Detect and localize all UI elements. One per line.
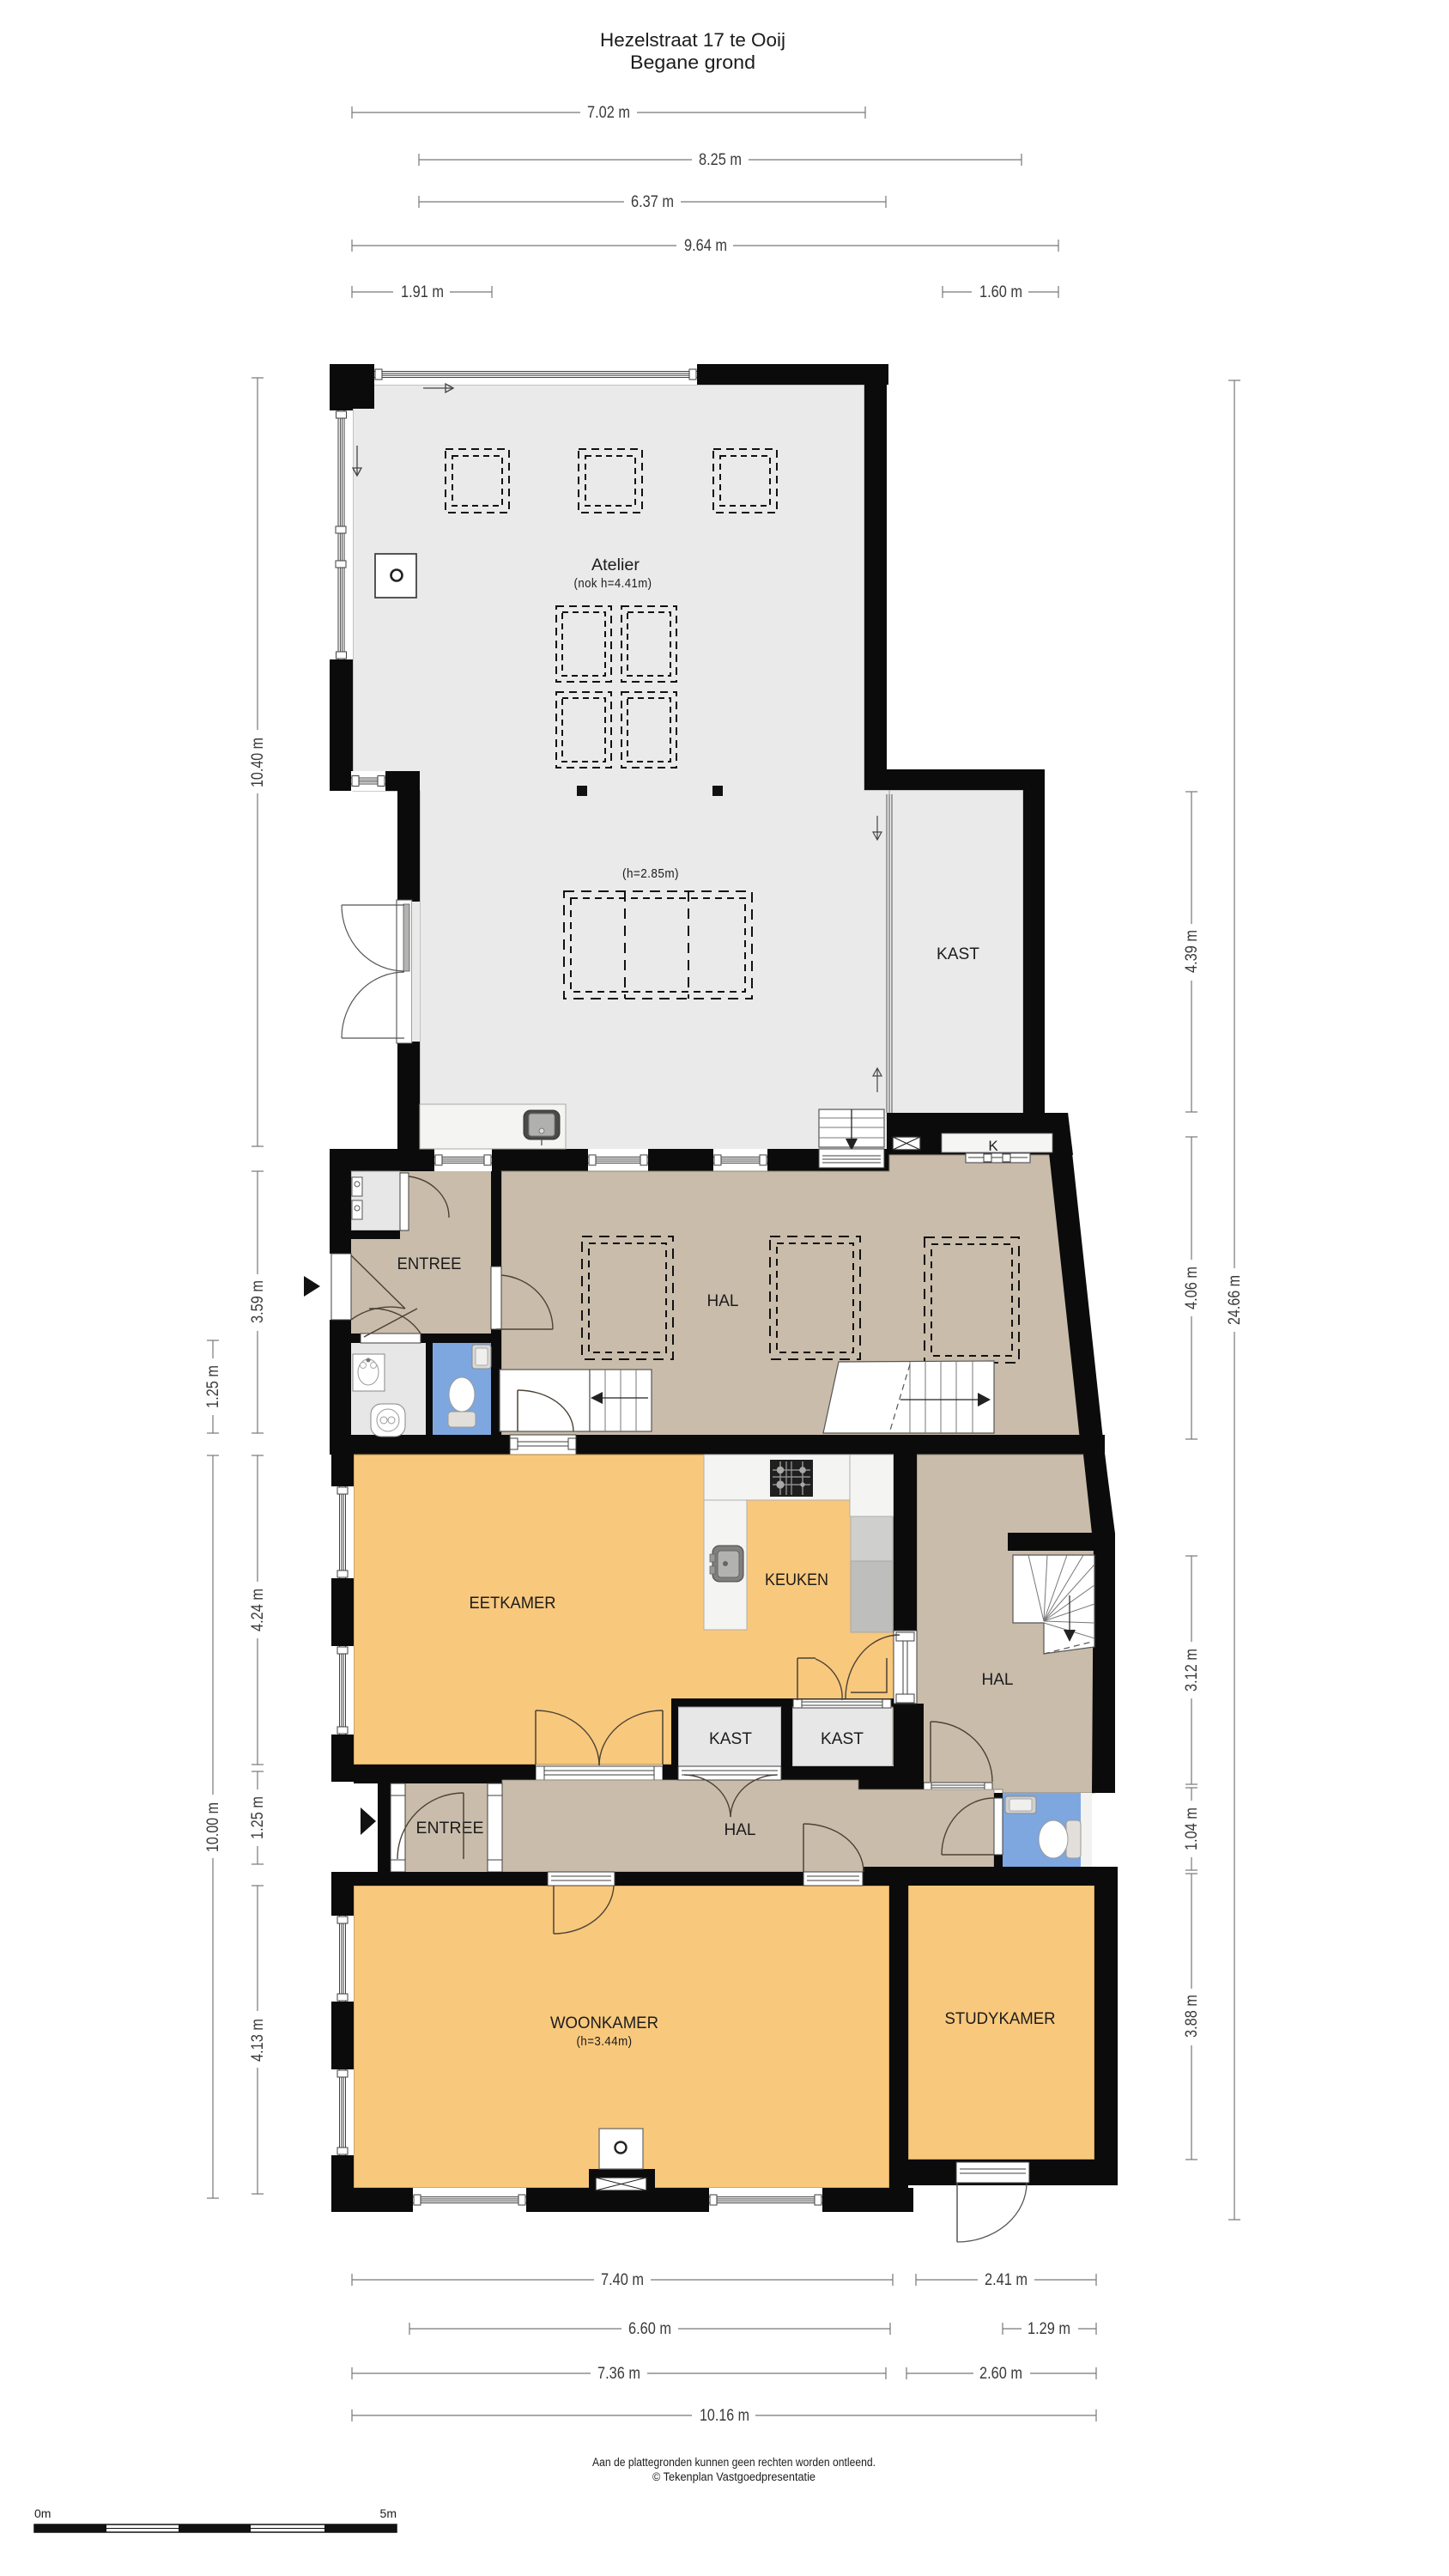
svg-text:Begane grond: Begane grond bbox=[630, 52, 755, 73]
svg-text:1.25 m: 1.25 m bbox=[204, 1365, 222, 1408]
svg-text:(h=2.85m): (h=2.85m) bbox=[622, 866, 679, 881]
svg-text:Aan de plattegronden kunnen ge: Aan de plattegronden kunnen geen rechten… bbox=[592, 2456, 876, 2469]
svg-text:24.66 m: 24.66 m bbox=[1226, 1275, 1244, 1325]
svg-text:HAL: HAL bbox=[982, 1671, 1014, 1689]
svg-text:KAST: KAST bbox=[937, 945, 979, 963]
svg-text:EETKAMER: EETKAMER bbox=[470, 1595, 556, 1613]
svg-text:HAL: HAL bbox=[724, 1821, 756, 1839]
svg-text:3.59 m: 3.59 m bbox=[249, 1280, 267, 1323]
svg-text:7.40 m: 7.40 m bbox=[601, 2271, 644, 2289]
svg-text:3.12 m: 3.12 m bbox=[1183, 1649, 1201, 1692]
svg-text:1.25 m: 1.25 m bbox=[249, 1796, 267, 1839]
svg-text:7.02 m: 7.02 m bbox=[587, 104, 630, 122]
svg-text:1.60 m: 1.60 m bbox=[979, 283, 1022, 301]
svg-text:2.60 m: 2.60 m bbox=[979, 2365, 1022, 2383]
svg-text:1.29 m: 1.29 m bbox=[1028, 2320, 1070, 2338]
svg-text:4.39 m: 4.39 m bbox=[1183, 930, 1201, 973]
svg-text:K: K bbox=[988, 1138, 998, 1154]
svg-text:1.04 m: 1.04 m bbox=[1183, 1807, 1201, 1850]
svg-text:KAST: KAST bbox=[821, 1730, 864, 1748]
svg-text:Atelier: Atelier bbox=[591, 556, 640, 574]
svg-text:ENTREE: ENTREE bbox=[397, 1255, 462, 1273]
svg-text:4.06 m: 4.06 m bbox=[1183, 1267, 1201, 1309]
svg-text:10.16 m: 10.16 m bbox=[700, 2407, 749, 2425]
svg-text:10.40 m: 10.40 m bbox=[249, 738, 267, 787]
svg-text:3.88 m: 3.88 m bbox=[1183, 1995, 1201, 2038]
svg-text:(h=3.44m): (h=3.44m) bbox=[577, 2034, 633, 2049]
svg-text:KEUKEN: KEUKEN bbox=[765, 1571, 828, 1589]
svg-text:10.00 m: 10.00 m bbox=[204, 1802, 222, 1852]
svg-text:8.25 m: 8.25 m bbox=[699, 151, 742, 169]
svg-text:© Tekenplan Vastgoedpresentati: © Tekenplan Vastgoedpresentatie bbox=[652, 2470, 815, 2483]
svg-text:6.37 m: 6.37 m bbox=[631, 193, 674, 211]
svg-text:7.36 m: 7.36 m bbox=[597, 2365, 640, 2383]
svg-text:6.60 m: 6.60 m bbox=[628, 2320, 671, 2338]
svg-text:HAL: HAL bbox=[707, 1292, 739, 1310]
svg-text:KAST: KAST bbox=[709, 1730, 752, 1748]
svg-text:2.41 m: 2.41 m bbox=[985, 2271, 1028, 2289]
svg-text:STUDYKAMER: STUDYKAMER bbox=[945, 2010, 1056, 2028]
svg-text:9.64 m: 9.64 m bbox=[684, 237, 727, 255]
svg-text:WOONKAMER: WOONKAMER bbox=[550, 2014, 658, 2032]
svg-text:5m: 5m bbox=[380, 2506, 397, 2520]
svg-text:4.24 m: 4.24 m bbox=[249, 1589, 267, 1631]
svg-text:0m: 0m bbox=[34, 2506, 51, 2520]
svg-text:(nok h=4.41m): (nok h=4.41m) bbox=[574, 576, 652, 591]
svg-text:4.13 m: 4.13 m bbox=[249, 2019, 267, 2062]
svg-text:1.91 m: 1.91 m bbox=[401, 283, 444, 301]
svg-text:ENTREE: ENTREE bbox=[416, 1820, 484, 1838]
svg-text:Hezelstraat 17 te Ooij: Hezelstraat 17 te Ooij bbox=[600, 29, 785, 51]
